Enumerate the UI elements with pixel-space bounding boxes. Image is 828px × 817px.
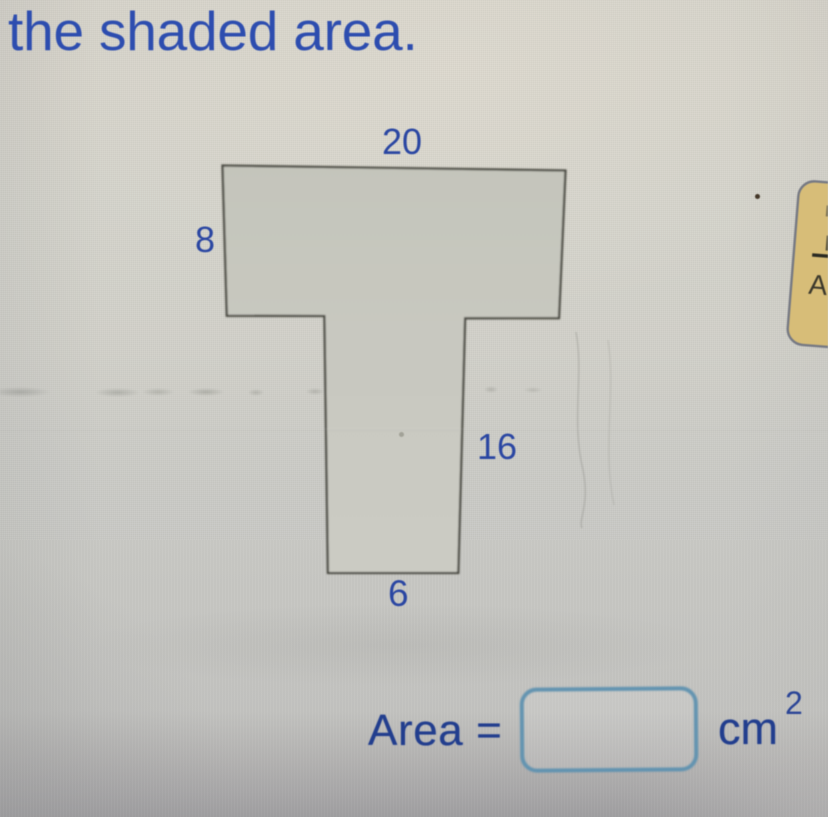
svg-text:A: A — [808, 269, 828, 301]
